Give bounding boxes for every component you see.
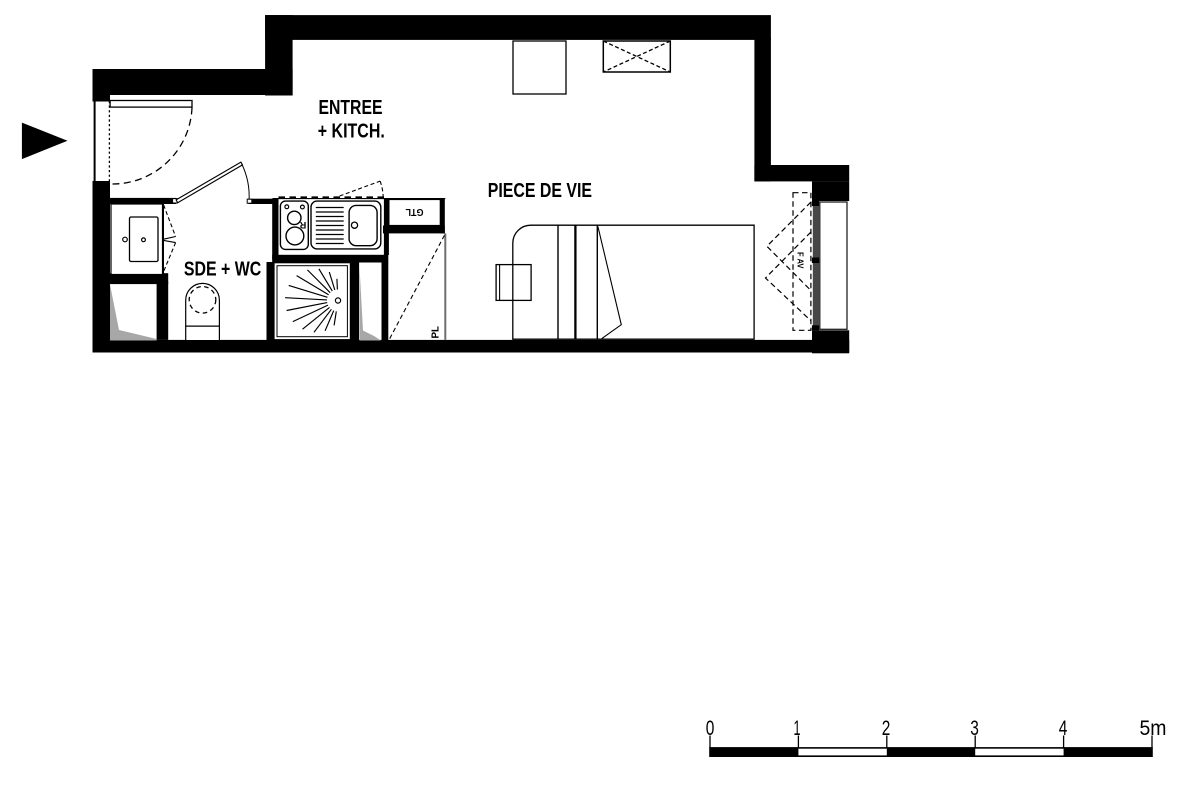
svg-text:0: 0 (706, 717, 715, 740)
svg-text:GTL: GTL (406, 206, 424, 217)
svg-text:5m: 5m (1140, 717, 1167, 740)
svg-text:F AV: F AV (796, 252, 805, 269)
svg-text:ENTREE: ENTREE (319, 97, 383, 119)
svg-text:2: 2 (882, 717, 891, 740)
svg-text:PL: PL (431, 326, 442, 339)
svg-text:SDE + WC: SDE + WC (184, 259, 261, 281)
svg-text:PIECE DE VIE: PIECE DE VIE (488, 180, 592, 202)
svg-text:4: 4 (1059, 717, 1068, 740)
svg-text:1: 1 (794, 717, 801, 740)
svg-text:3: 3 (970, 717, 979, 740)
svg-text:+ KITCH.: + KITCH. (318, 120, 385, 142)
svg-text:R: R (299, 220, 306, 230)
